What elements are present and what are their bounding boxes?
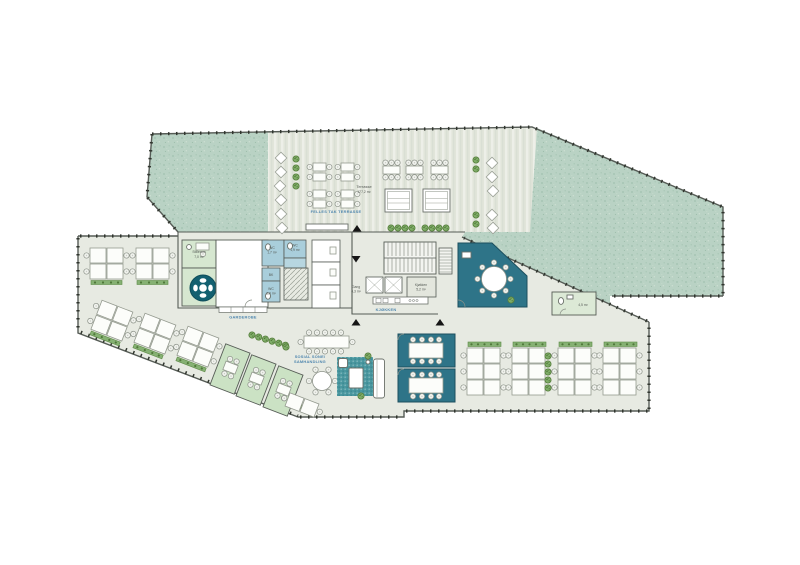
wc-c-area: 2,0 m² (266, 292, 276, 296)
wardrobe-zone-label: GARDEROBE (229, 315, 257, 320)
sink-icon (567, 295, 573, 299)
stair-main (384, 242, 436, 274)
social-zone-label-2: SAMHANDLING (294, 359, 326, 364)
lounge-rug (337, 357, 373, 396)
hall-name: Gang (352, 285, 360, 289)
pod-room (182, 268, 218, 306)
bench-icon (306, 224, 348, 230)
meeting-room-large (216, 240, 268, 307)
floor-lamp-icon (366, 360, 370, 364)
floor-plan: Terrasse 177,2 m² FELLES TAK TERRASSE St… (0, 0, 800, 565)
meeting-room-2 (398, 369, 455, 402)
quiet-room-area: 7,0 m² (194, 255, 204, 259)
coffee-table-icon (349, 368, 363, 388)
bk-name: BK (269, 273, 274, 277)
wc-a-area: 1,7 m² (267, 251, 277, 255)
wc-hc-room (552, 292, 596, 315)
kitchen-room-name: Kjøkken (415, 283, 427, 287)
wc-c-name: WC (268, 287, 274, 291)
meeting-room-1 (398, 334, 455, 367)
terrace-name-label: Terrasse (356, 184, 372, 189)
kitchen-zone-label: KJØKKEN (376, 307, 397, 312)
wc-b-area: 1,9 m² (290, 248, 300, 252)
terrace-zone-label: FELLES TAK TERRASSE (311, 209, 362, 214)
stair-side (439, 248, 452, 274)
phone-booths (312, 240, 340, 308)
kitchen-room-area: 5,2 m² (416, 288, 426, 292)
desk-icon (196, 243, 209, 250)
hedge-icon (545, 353, 551, 391)
sofa-icon (374, 359, 385, 398)
meeting-pod-icon (190, 275, 216, 301)
armchair-icon (339, 359, 348, 368)
terrace-area-label: 177,2 m² (357, 190, 371, 194)
device-icon (187, 245, 192, 250)
toilet-icon (558, 298, 563, 305)
quiet-room (182, 240, 216, 268)
floor-plan-page: Terrasse 177,2 m² FELLES TAK TERRASSE St… (0, 0, 800, 565)
shaft (284, 268, 308, 300)
kitchen-counter (373, 297, 428, 304)
side-table-icon (462, 252, 471, 258)
quiet-room-name: Stillerom (192, 250, 205, 254)
wc-hc-area: 4,5 m² (578, 303, 588, 307)
hall-area: 4,3 m² (351, 290, 361, 294)
wc-b-name: WC (292, 244, 298, 248)
wardrobe-lockers (219, 307, 267, 313)
wc-a-name: WC (269, 246, 275, 250)
